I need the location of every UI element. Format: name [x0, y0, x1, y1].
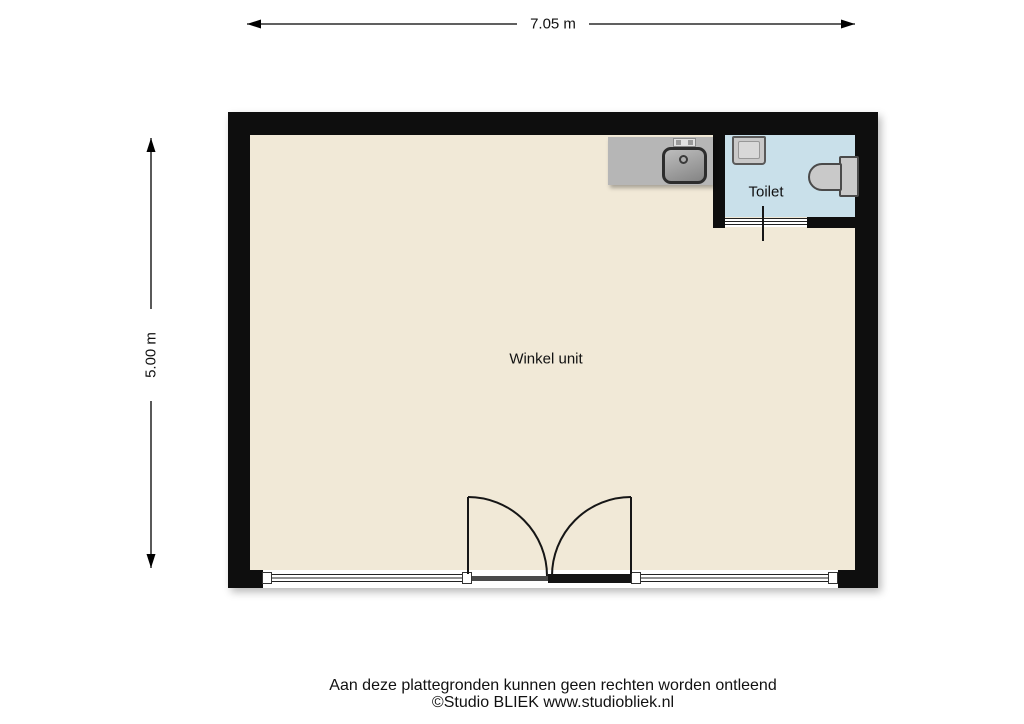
hand-basin-bowl [738, 141, 760, 159]
main-room-label: Winkel unit [509, 352, 582, 367]
disclaimer-text: Aan deze plattegronden kunnen geen recht… [329, 678, 776, 694]
toilet-room-label: Toilet [748, 185, 783, 200]
toilet-bowl [808, 163, 842, 191]
window-glazing-left [272, 574, 462, 582]
sink-drain-icon [679, 155, 688, 164]
faucet-icon [673, 138, 696, 147]
wall-left [228, 112, 250, 588]
window-mullion [631, 572, 641, 584]
toilet-door-opening [725, 218, 807, 227]
faucet-handle-icon [676, 140, 681, 145]
hand-basin [732, 136, 766, 165]
wall-corner-bottom-right [838, 570, 855, 588]
toilet-cistern [839, 156, 859, 197]
window-mullion [462, 572, 472, 584]
entrance-door-threshold-left [472, 576, 548, 581]
kitchen-sink [662, 147, 707, 184]
faucet-handle-icon [688, 140, 693, 145]
toilet-wall-left [713, 135, 725, 228]
toilet-wall-bottom [807, 217, 855, 228]
floorplan-canvas: 7.05 m 5.00 m Winkel unit Toilet Aan dez… [0, 0, 1024, 724]
entrance-door-threshold-right [548, 574, 631, 583]
wall-top [228, 112, 878, 135]
dimension-width-label: 7.05 m [530, 17, 576, 32]
window-mullion [262, 572, 272, 584]
window-glazing-right [641, 574, 828, 582]
window-mullion [828, 572, 838, 584]
dimension-height-label: 5.00 m [144, 332, 159, 378]
credit-text: ©Studio BLIEK www.studiobliek.nl [432, 695, 674, 711]
